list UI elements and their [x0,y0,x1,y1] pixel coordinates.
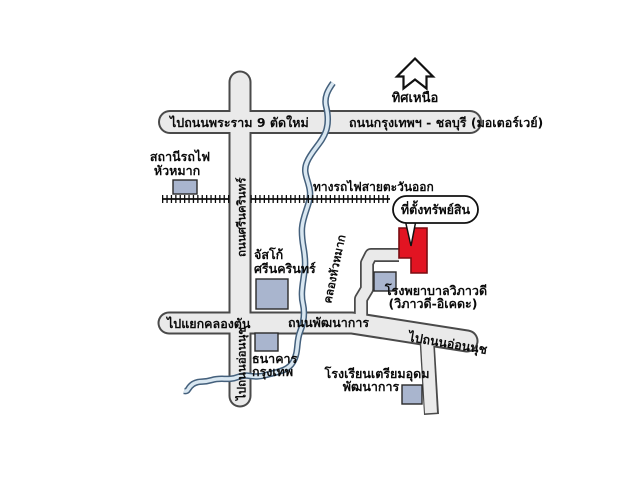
north-arrow-icon [397,59,433,89]
bangkok-bank-building [255,333,278,351]
label-phatthanakan-road: ถนนพัฒนาการ [288,315,369,330]
map-canvas: ที่ตั้งทรัพย์สิน ทิศเหนือ ไปถนนพระราม 9 … [0,0,640,480]
label-hospital-2: (วิภาวดี-อิเคดะ) [388,296,477,311]
label-railway: ทางรถไฟสายตะวันออก [313,179,434,194]
label-motorway-west: ไปถนนพระราม 9 ตัดใหม่ [168,115,309,130]
school-building [402,385,422,404]
label-train-station-1: สถานีรถไฟ [150,149,210,164]
label-school-2: พัฒนาการ [343,379,400,394]
label-jusco-1: จัสโก้ [254,247,283,262]
property-callout-label: ที่ตั้งทรัพย์สิน [401,200,471,217]
jusco-building [256,279,288,309]
north-label: ทิศเหนือ [392,90,439,106]
label-motorway-east: ถนนกรุงเทพฯ - ชลบุรี (มอเตอร์เวย์) [349,115,543,131]
label-train-station-2: หัวหมาก [154,163,200,178]
label-to-on-nut-south: ไปถนนอ่อนนุช [235,327,250,402]
label-canal: คลองหัวหมาก [320,233,348,304]
location-map: ที่ตั้งทรัพย์สิน ทิศเหนือ ไปถนนพระราม 9 … [0,0,640,480]
label-bank-2: กรุงเทพ [252,364,293,380]
train-station-building [173,180,197,194]
label-jusco-2: ศรีนครินทร์ [254,261,316,276]
label-srinakarin-road: ถนนศรีนครินทร์ [235,177,249,257]
